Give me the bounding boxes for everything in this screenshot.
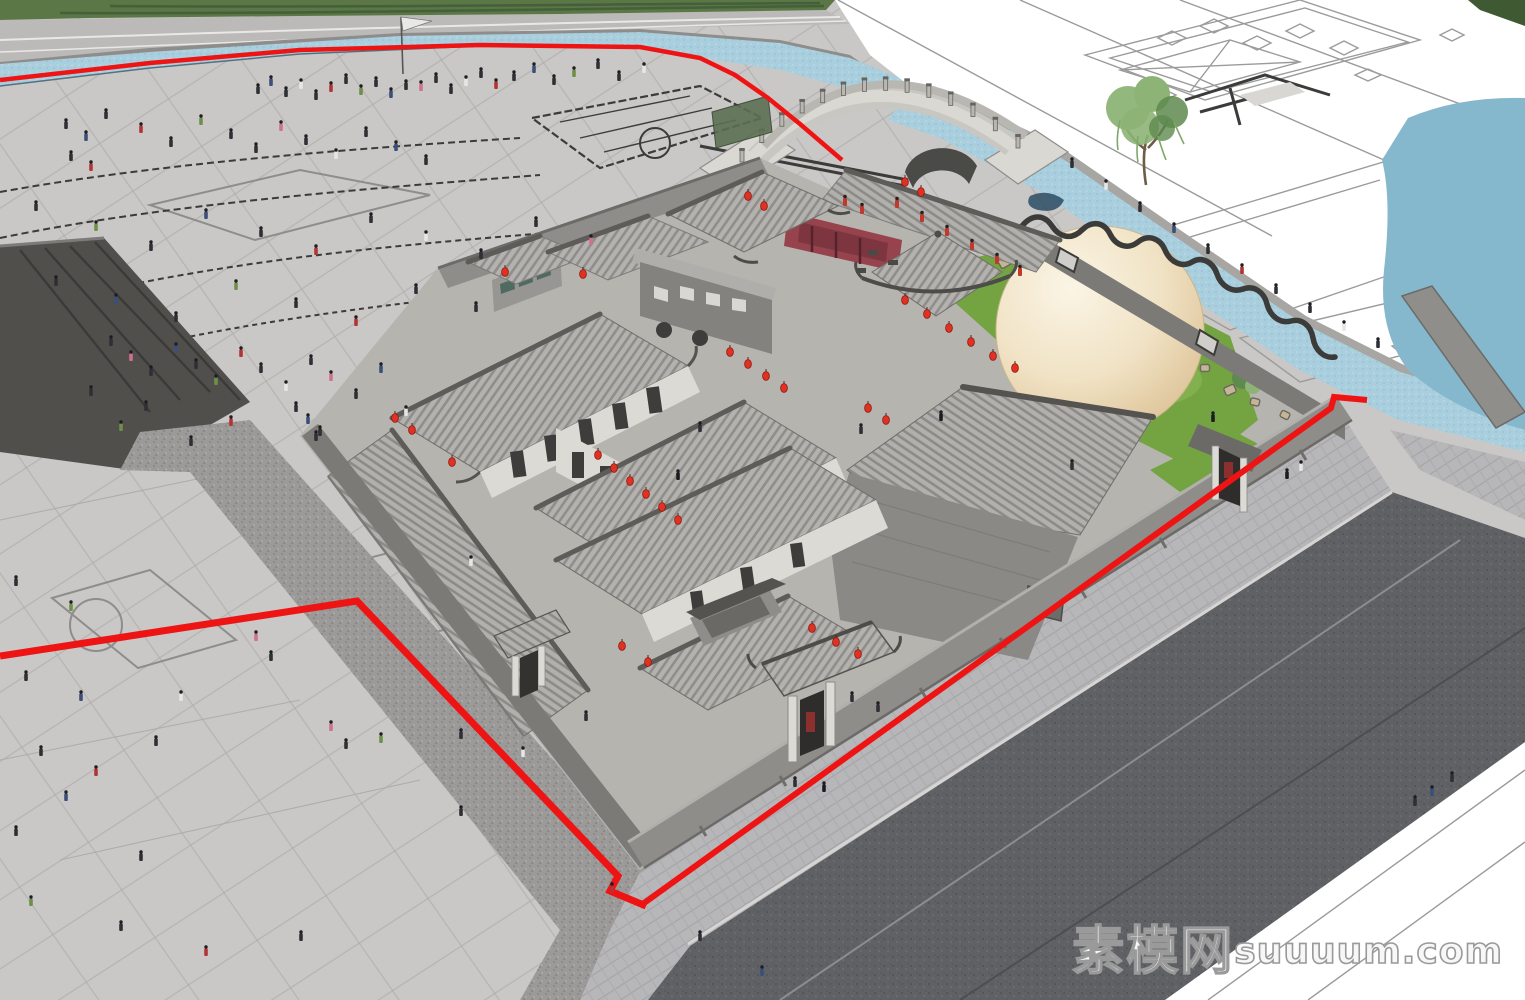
person (94, 224, 98, 232)
bridge-post-cap (739, 148, 745, 151)
person (309, 358, 313, 366)
red-figure-head (920, 211, 924, 215)
person-head (334, 148, 337, 151)
person-head (299, 78, 302, 81)
person (284, 384, 288, 392)
person-head (354, 388, 357, 391)
person-head (109, 335, 112, 338)
person-head (119, 920, 122, 923)
person (318, 429, 322, 437)
person (676, 473, 680, 481)
person-head (139, 122, 142, 125)
person (314, 248, 318, 256)
person (64, 794, 68, 802)
person (369, 216, 373, 224)
person-head (1138, 201, 1141, 204)
person-head (256, 83, 259, 86)
red-figure-head (895, 197, 899, 201)
person-head (269, 650, 272, 653)
bridge-post-cap (904, 78, 910, 81)
person-head (259, 362, 262, 365)
person-head (584, 710, 587, 713)
person (698, 425, 702, 433)
bridge-post (841, 84, 845, 96)
person-head (394, 140, 397, 143)
person (54, 279, 58, 287)
bridge-post (780, 114, 784, 126)
person-head (459, 728, 462, 731)
person-head (329, 370, 332, 373)
person (344, 742, 348, 750)
person (379, 736, 383, 744)
person-head (596, 58, 599, 61)
person (364, 130, 368, 138)
person (89, 389, 93, 397)
person-head (89, 160, 92, 163)
watermark: 素模网suuuum.com (1072, 909, 1503, 984)
person (404, 409, 408, 417)
person-head (84, 130, 87, 133)
person (89, 164, 93, 172)
person (939, 414, 943, 422)
architectural-render: 素模网suuuum.com (0, 0, 1525, 1000)
person (169, 140, 173, 148)
person-head (34, 200, 37, 203)
bridge-post-cap (948, 91, 954, 94)
person (174, 315, 178, 323)
person-head (1274, 283, 1277, 286)
person (494, 82, 498, 90)
person (859, 427, 863, 435)
person-head (24, 670, 27, 673)
person (1342, 324, 1346, 332)
bridge-post (800, 101, 804, 113)
person-head (199, 114, 202, 117)
person (334, 152, 338, 160)
person (359, 88, 363, 96)
red-lantern (627, 477, 634, 486)
bridge-post (862, 79, 866, 91)
person (1376, 341, 1380, 349)
red-figure-head (995, 253, 999, 257)
person-head (1413, 795, 1416, 798)
person (269, 654, 273, 662)
person-head (1376, 337, 1379, 340)
person-head (94, 220, 97, 223)
person-head (54, 275, 57, 278)
red-figure-head (945, 225, 949, 229)
person-head (859, 423, 862, 426)
person-head (279, 120, 282, 123)
person (1240, 267, 1244, 275)
person-head (179, 690, 182, 693)
person (329, 724, 333, 732)
person (1308, 306, 1312, 314)
person-head (229, 415, 232, 418)
person-head (169, 136, 172, 139)
person-head (424, 230, 427, 233)
person-head (822, 781, 825, 784)
person (389, 91, 393, 99)
person-head (1070, 157, 1073, 160)
person-head (552, 74, 555, 77)
person (876, 705, 880, 713)
person-head (139, 850, 142, 853)
bridge-post (884, 78, 888, 90)
person (1206, 247, 1210, 255)
person-head (189, 435, 192, 438)
person-head (344, 738, 347, 741)
person (234, 283, 238, 291)
bridge-post-cap (799, 99, 805, 102)
person-head (214, 374, 217, 377)
red-figure-head (1018, 265, 1022, 269)
person (1070, 161, 1074, 169)
bridge-post (821, 91, 825, 103)
red-lantern (781, 384, 788, 393)
person-head (876, 701, 879, 704)
person-head (379, 732, 382, 735)
bridge-post (1016, 136, 1020, 148)
person-head (424, 154, 427, 157)
red-lantern (763, 372, 770, 381)
person (29, 899, 33, 907)
red-lantern (968, 338, 975, 347)
bridge-post-cap (970, 103, 976, 106)
person-head (149, 365, 152, 368)
person-head (309, 354, 312, 357)
bridge-post (949, 93, 953, 105)
person (14, 579, 18, 587)
scene-canvas (0, 0, 1525, 1000)
red-lantern (902, 178, 909, 187)
person (512, 74, 516, 82)
person (572, 70, 576, 78)
person-head (154, 735, 157, 738)
person-head (284, 380, 287, 383)
person-head (129, 350, 132, 353)
person-head (306, 413, 309, 416)
person-head (479, 248, 482, 251)
person (584, 714, 588, 722)
person-head (304, 134, 307, 137)
person-head (14, 575, 17, 578)
red-figure-head (860, 203, 864, 207)
person-head (1299, 460, 1302, 463)
person-head (760, 965, 763, 968)
person-head (1240, 263, 1243, 266)
red-lantern (946, 324, 953, 333)
red-lantern (918, 188, 925, 197)
person-head (479, 67, 482, 70)
person-head (572, 66, 575, 69)
red-figure (970, 242, 974, 250)
person (14, 829, 18, 837)
watermark-site-name: 素模网 (1072, 922, 1234, 982)
person-head (269, 75, 272, 78)
person (1070, 463, 1074, 471)
person-head (64, 118, 67, 121)
person (698, 934, 702, 942)
person-head (1104, 179, 1107, 182)
person-head (676, 469, 679, 472)
person (344, 77, 348, 85)
person (314, 93, 318, 101)
person (532, 66, 536, 74)
person (374, 80, 378, 88)
bridge-post-cap (841, 82, 847, 85)
person-head (1211, 411, 1214, 414)
person (174, 346, 178, 354)
person (269, 79, 273, 87)
person-head (617, 70, 620, 73)
person (259, 230, 263, 238)
red-lantern (990, 352, 997, 361)
person (149, 369, 153, 377)
person (294, 301, 298, 309)
person-head (69, 600, 72, 603)
red-lantern (833, 638, 840, 647)
person (259, 366, 263, 374)
red-lantern (595, 451, 602, 460)
red-lantern (883, 416, 890, 425)
red-lantern (643, 490, 650, 499)
person-head (229, 128, 232, 131)
person-head (589, 234, 592, 237)
person (479, 252, 483, 260)
person-head (1450, 771, 1453, 774)
person (69, 154, 73, 162)
person (119, 424, 123, 432)
person-head (474, 301, 477, 304)
person-head (94, 765, 97, 768)
person (254, 634, 258, 642)
red-figure (995, 256, 999, 264)
person (104, 112, 108, 120)
bridge-post-cap (1015, 134, 1021, 137)
person-head (1285, 468, 1288, 471)
person (610, 886, 614, 894)
red-lantern (611, 464, 618, 473)
person-head (144, 400, 147, 403)
red-lantern (924, 310, 931, 319)
person (284, 90, 288, 98)
person-head (329, 720, 332, 723)
red-lantern (727, 348, 734, 357)
red-lantern (392, 414, 399, 423)
person (154, 739, 158, 747)
person (304, 138, 308, 146)
person (279, 124, 283, 132)
person-head (459, 805, 462, 808)
person (229, 132, 233, 140)
person (299, 82, 303, 90)
person-head (521, 746, 524, 749)
person-head (234, 279, 237, 282)
person-head (329, 81, 332, 84)
red-figure (843, 198, 847, 206)
bridge-post (993, 119, 997, 131)
person-head (194, 358, 197, 361)
person (1274, 287, 1278, 295)
person (474, 305, 478, 313)
person (434, 76, 438, 84)
person-head (512, 70, 515, 73)
bridge-post-cap (820, 89, 826, 92)
red-figure (1018, 268, 1022, 276)
person (419, 84, 423, 92)
red-figure (860, 206, 864, 214)
person-head (114, 293, 117, 296)
red-figure (895, 200, 899, 208)
person-head (314, 244, 317, 247)
person (449, 87, 453, 95)
person (109, 339, 113, 347)
person-head (294, 297, 297, 300)
person-head (149, 240, 152, 243)
red-lantern (1012, 364, 1019, 373)
person (394, 144, 398, 152)
red-lantern (745, 360, 752, 369)
person (294, 405, 298, 413)
red-figure-head (970, 239, 974, 243)
person (84, 134, 88, 142)
person-head (449, 83, 452, 86)
rock-stone (1200, 364, 1209, 371)
person (1104, 183, 1108, 191)
person-head (89, 385, 92, 388)
person (469, 559, 473, 567)
person (793, 780, 797, 788)
person-head (318, 425, 321, 428)
red-lantern (580, 270, 587, 279)
person (534, 220, 538, 228)
person (596, 62, 600, 70)
bridge-post (740, 150, 744, 162)
person-head (1070, 459, 1073, 462)
person (552, 78, 556, 86)
person (850, 695, 854, 703)
watermark-domain: suuuum.com (1234, 931, 1503, 972)
bridge-post-cap (862, 77, 868, 80)
red-lantern (745, 192, 752, 201)
person (139, 854, 143, 862)
person-head (379, 362, 382, 365)
person-head (698, 930, 701, 933)
person-head (1342, 320, 1345, 323)
person-head (359, 84, 362, 87)
bridge-post (927, 85, 931, 97)
person (204, 949, 208, 957)
person-head (174, 342, 177, 345)
person (144, 404, 148, 412)
red-lantern (659, 503, 666, 512)
person-head (642, 62, 645, 65)
person (239, 350, 243, 358)
red-lantern (761, 202, 768, 211)
person (1211, 415, 1215, 423)
person (424, 158, 428, 166)
red-lantern (855, 650, 862, 659)
person-head (239, 346, 242, 349)
person-head (1206, 243, 1209, 246)
person-head (419, 80, 422, 83)
person (24, 674, 28, 682)
person (69, 604, 73, 612)
person-head (204, 945, 207, 948)
person (1450, 775, 1454, 783)
person-head (534, 216, 537, 219)
person-head (369, 212, 372, 215)
person (329, 85, 333, 93)
person (459, 809, 463, 817)
red-lantern (645, 658, 652, 667)
person-head (174, 311, 177, 314)
person-head (389, 87, 392, 90)
person-head (69, 150, 72, 153)
person-head (354, 315, 357, 318)
person (1285, 472, 1289, 480)
person-head (64, 790, 67, 793)
person (459, 732, 463, 740)
red-lantern (809, 624, 816, 633)
person-head (204, 208, 207, 211)
person-head (532, 62, 535, 65)
person (617, 74, 621, 82)
person-head (364, 126, 367, 129)
rock-stone (1250, 398, 1260, 407)
person (314, 434, 318, 442)
person-head (344, 73, 347, 76)
bridge-post-cap (926, 83, 932, 86)
person (404, 83, 408, 91)
person-head (939, 410, 942, 413)
person (204, 212, 208, 220)
person (34, 204, 38, 212)
person-head (29, 895, 32, 898)
person (424, 234, 428, 242)
person (256, 87, 260, 95)
person-head (1430, 785, 1433, 788)
person (214, 378, 218, 386)
person (1299, 464, 1303, 472)
person-head (284, 86, 287, 89)
person-head (299, 930, 302, 933)
person (179, 694, 183, 702)
person-head (610, 882, 613, 885)
person (229, 419, 233, 427)
person (354, 392, 358, 400)
person-head (404, 405, 407, 408)
red-lantern (865, 404, 872, 413)
person (1430, 789, 1434, 797)
person (642, 66, 646, 74)
red-lantern (449, 458, 456, 467)
person (306, 417, 310, 425)
person-head (469, 555, 472, 558)
person (379, 366, 383, 374)
person-head (39, 745, 42, 748)
red-figure-head (843, 195, 847, 199)
person-head (104, 108, 107, 111)
person-head (294, 401, 297, 404)
person (329, 374, 333, 382)
person (299, 934, 303, 942)
person (64, 122, 68, 130)
person (139, 126, 143, 134)
person (94, 769, 98, 777)
person (1413, 799, 1417, 807)
